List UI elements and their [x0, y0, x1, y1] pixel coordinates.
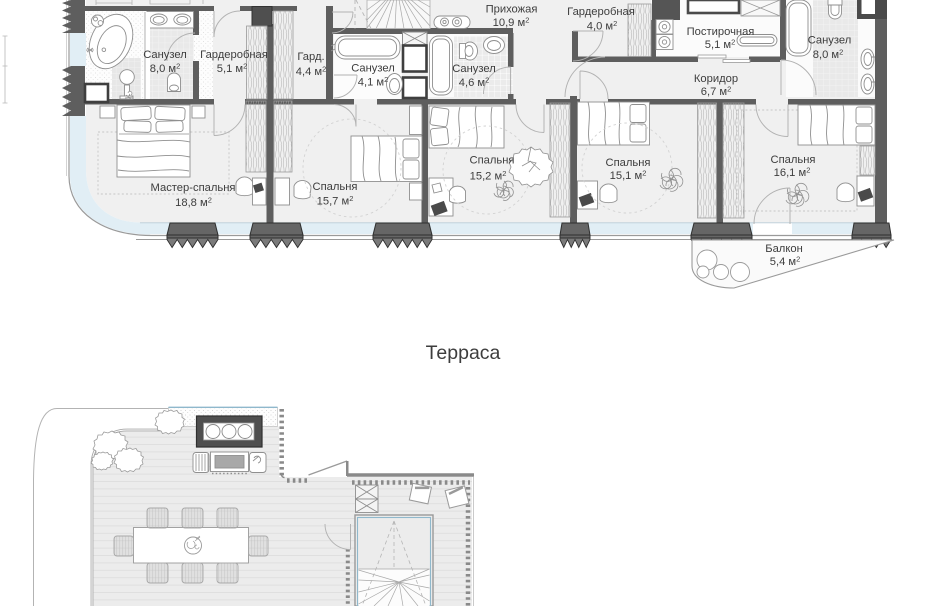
svg-text:10,9 м2: 10,9 м2	[493, 16, 530, 30]
svg-text:15,7 м2: 15,7 м2	[317, 194, 354, 208]
svg-text:Гардеробная: Гардеробная	[567, 6, 635, 18]
svg-text:Постирочная: Постирочная	[687, 26, 755, 38]
svg-text:4,0 м2: 4,0 м2	[587, 19, 618, 33]
svg-text:Санузел: Санузел	[351, 63, 395, 75]
svg-text:5,4 м2: 5,4 м2	[770, 255, 801, 269]
svg-text:Спальня: Спальня	[470, 155, 515, 167]
svg-text:Мастер-спальня: Мастер-спальня	[151, 182, 236, 194]
svg-text:6,7 м2: 6,7 м2	[701, 85, 732, 99]
svg-text:18,8 м2: 18,8 м2	[175, 196, 212, 210]
svg-text:Спальня: Спальня	[606, 157, 651, 169]
svg-text:5,1 м2: 5,1 м2	[705, 38, 736, 52]
svg-text:Балкон: Балкон	[765, 243, 803, 255]
svg-text:4,6 м2: 4,6 м2	[459, 76, 490, 90]
svg-text:Спальня: Спальня	[771, 154, 816, 166]
svg-text:Санузел: Санузел	[808, 35, 852, 47]
svg-text:4,1 м2: 4,1 м2	[358, 75, 389, 89]
svg-text:Прихожая: Прихожая	[486, 4, 538, 16]
svg-text:Санузел: Санузел	[143, 49, 187, 61]
svg-text:Коридор: Коридор	[694, 73, 738, 85]
svg-text:15,2 м2: 15,2 м2	[470, 169, 507, 183]
svg-text:Терраса: Терраса	[426, 342, 501, 364]
svg-text:Спальня: Спальня	[313, 181, 358, 193]
svg-text:16,1 м2: 16,1 м2	[774, 166, 811, 180]
svg-text:5,1 м2: 5,1 м2	[217, 62, 248, 76]
svg-text:Гард.: Гард.	[297, 51, 324, 63]
svg-text:4,4 м2: 4,4 м2	[296, 65, 327, 79]
svg-text:8,0 м2: 8,0 м2	[813, 48, 844, 62]
svg-text:Санузел: Санузел	[452, 63, 496, 75]
svg-text:8,0 м2: 8,0 м2	[150, 62, 181, 76]
svg-text:15,1 м2: 15,1 м2	[610, 169, 647, 183]
svg-text:Гардеробная: Гардеробная	[200, 49, 268, 61]
